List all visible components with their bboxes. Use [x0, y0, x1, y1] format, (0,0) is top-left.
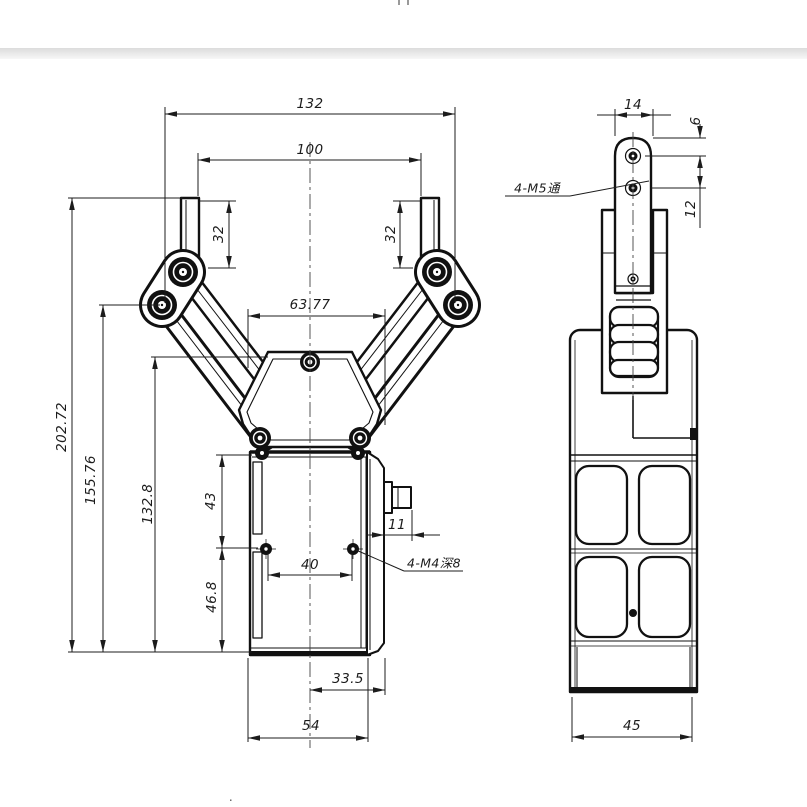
dim-link-span: 63.77: [290, 297, 331, 313]
dim-overall-height: 202.72: [54, 402, 70, 452]
dim-hole-pitch-side: 12: [683, 200, 699, 218]
dim-finger-span: 100: [297, 142, 324, 158]
dim-hole-top-offset: 6: [688, 117, 704, 126]
side-coupling-stack: [610, 307, 658, 377]
side-view-gripper: [570, 138, 697, 692]
dim-hole-pitch-front: 40: [301, 557, 319, 573]
stray-dot-artifact: .: [229, 790, 233, 804]
dim-palm-height: 132.8: [140, 484, 156, 525]
dim-connector-len: 11: [388, 517, 406, 533]
side-plate: [367, 452, 384, 655]
dim-overall-width: 132: [297, 96, 324, 112]
cad-canvas: [0, 0, 807, 807]
note-m4-thread: 4-M4深8: [407, 553, 461, 572]
dim-finger-right-len: 32: [383, 225, 399, 243]
dim-body-width-side: 45: [623, 718, 641, 734]
dim-elbow-height: 155.76: [83, 455, 99, 505]
front-body: [249, 446, 370, 656]
drawing-page: 132 100 32 32 63.77 202.72 155.76 132.8 …: [0, 0, 807, 807]
dim-body-width-front: 54: [302, 718, 320, 734]
dim-body-upper: 43: [203, 492, 219, 510]
connector-plug: [384, 482, 411, 513]
dim-finger-left-len: 32: [211, 225, 227, 243]
dim-finger-width-side: 14: [624, 97, 642, 113]
note-m5-thread: 4-M5通: [514, 178, 560, 197]
dim-body-lower: 46.8: [204, 581, 220, 613]
dim-center-to-plate: 33.5: [332, 671, 364, 687]
